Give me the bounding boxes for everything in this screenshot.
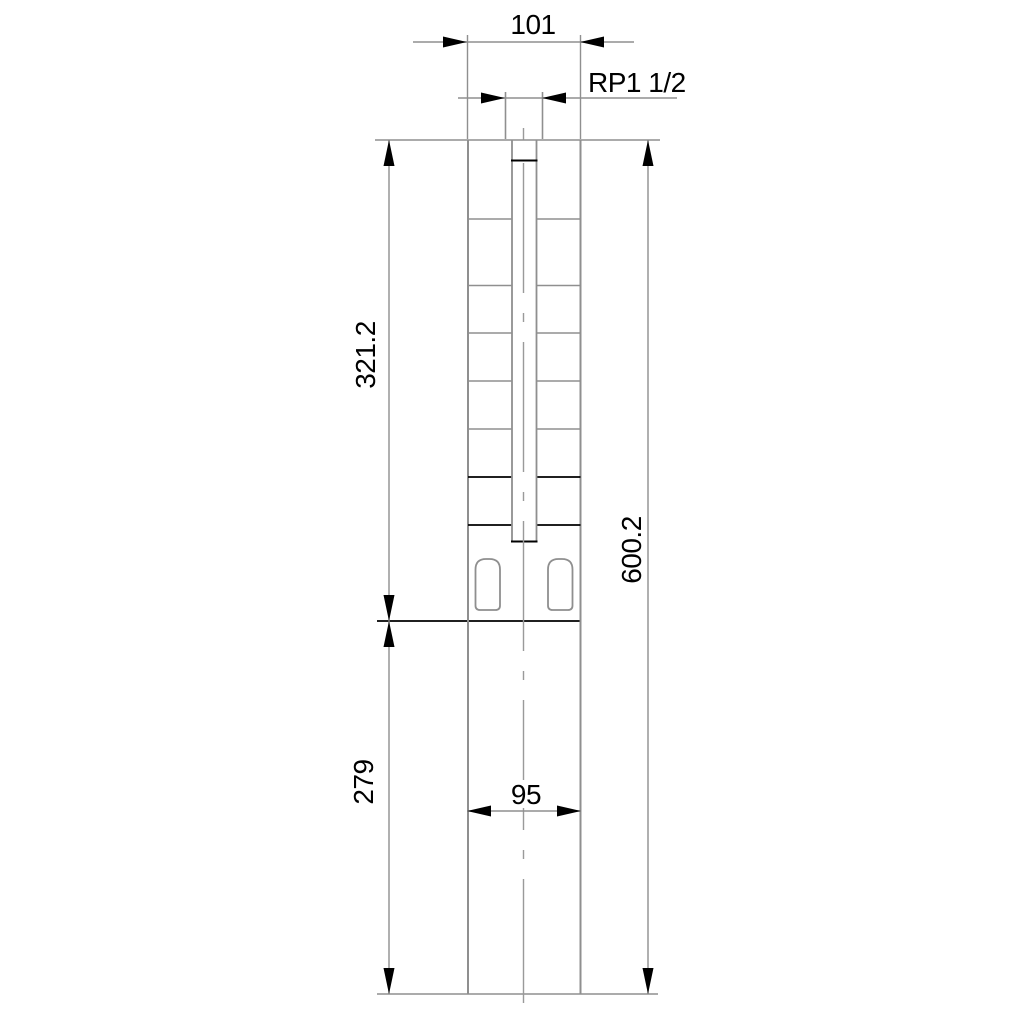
arrowhead	[643, 140, 654, 166]
dimension-value: 95	[511, 779, 541, 810]
dimension-321-2: 321.2	[350, 140, 395, 621]
inlet-slot-left	[476, 559, 501, 610]
dimension-value: 321.2	[350, 321, 381, 389]
dimension-value: 101	[510, 9, 555, 40]
inlet-slot-right	[548, 559, 573, 610]
pump-body-outline	[468, 140, 581, 994]
arrowhead	[481, 93, 505, 104]
pump-dimension-drawing: 101 RP1 1/2 321.2 600.2 279 95	[0, 0, 1024, 1024]
arrowhead	[542, 93, 566, 104]
arrowhead	[384, 140, 395, 166]
thread-label: RP1 1/2	[588, 67, 686, 98]
arrowhead	[384, 968, 395, 994]
dimension-rp1-1-2: RP1 1/2	[458, 67, 686, 139]
dimension-600-2: 600.2	[616, 140, 654, 994]
arrowhead	[580, 37, 604, 48]
arrowhead	[443, 37, 467, 48]
dimension-value: 279	[348, 759, 379, 804]
arrowhead	[384, 621, 395, 647]
stage-lines-black	[468, 477, 581, 525]
dimension-279: 279	[348, 621, 395, 994]
dimension-95: 95	[467, 779, 581, 817]
dimension-value: 600.2	[616, 516, 647, 584]
arrowhead	[643, 968, 654, 994]
arrowhead	[467, 806, 491, 817]
arrowhead	[557, 806, 581, 817]
inner-pipe	[511, 140, 538, 542]
stage-lines-grey	[468, 219, 581, 429]
drawing-canvas: 101 RP1 1/2 321.2 600.2 279 95	[0, 0, 1024, 1024]
arrowhead	[384, 595, 395, 621]
